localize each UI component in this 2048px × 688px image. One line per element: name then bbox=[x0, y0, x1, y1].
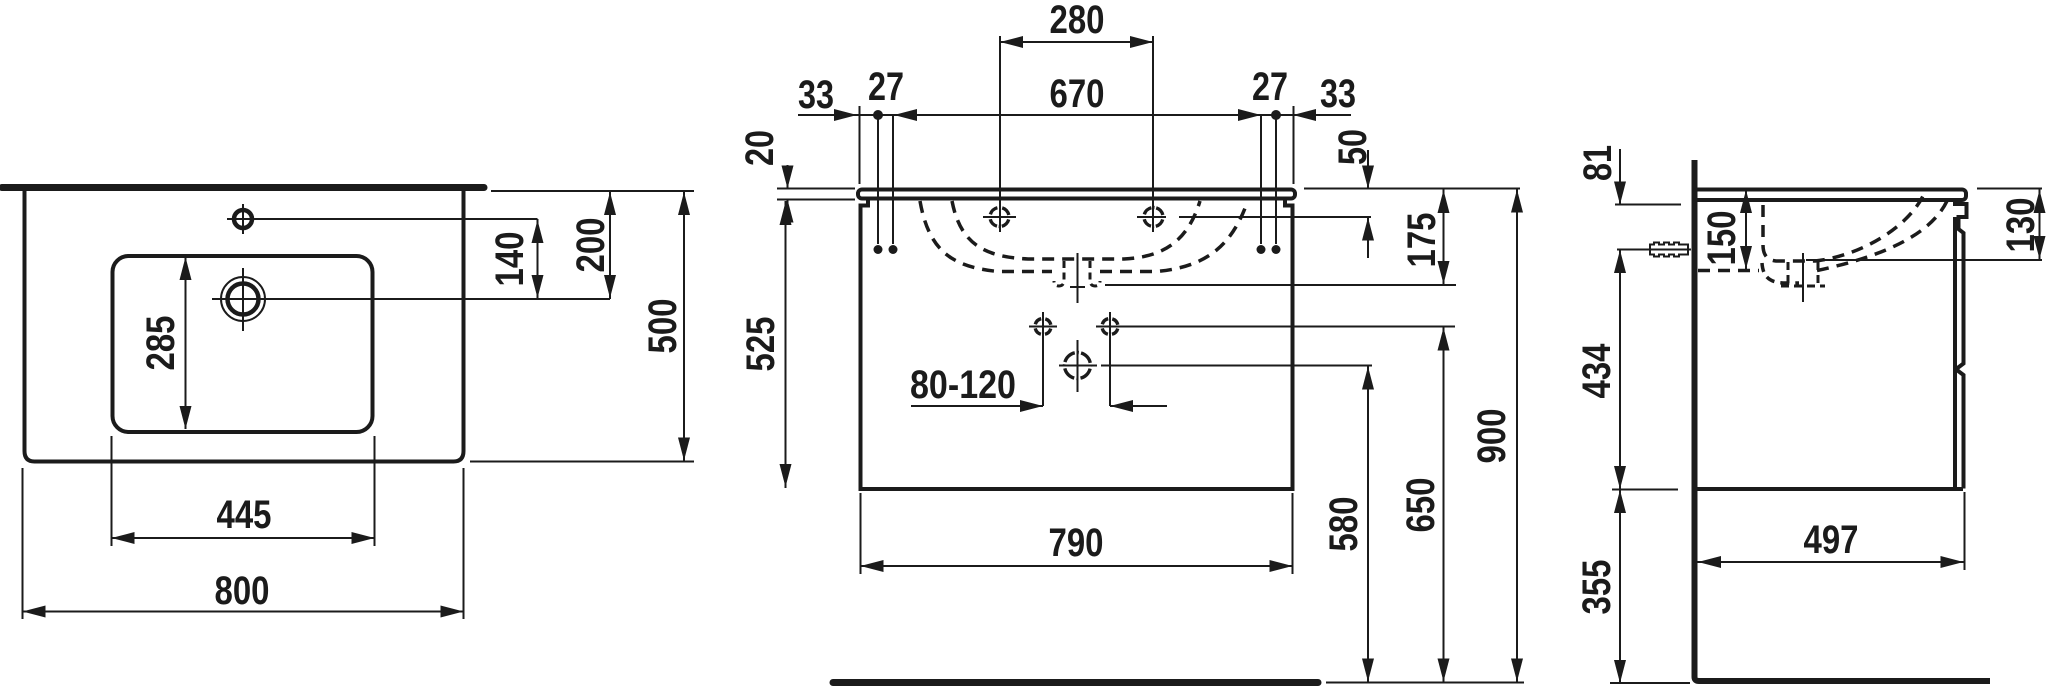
svg-text:280: 280 bbox=[1050, 0, 1105, 42]
svg-text:20: 20 bbox=[738, 130, 782, 166]
svg-text:80-120: 80-120 bbox=[910, 363, 1016, 407]
svg-text:175: 175 bbox=[1400, 213, 1444, 268]
svg-text:150: 150 bbox=[1700, 211, 1744, 266]
svg-text:790: 790 bbox=[1049, 521, 1104, 565]
svg-text:670: 670 bbox=[1050, 72, 1105, 116]
svg-text:580: 580 bbox=[1322, 497, 1366, 552]
svg-text:445: 445 bbox=[217, 493, 272, 537]
svg-text:33: 33 bbox=[798, 73, 834, 117]
svg-text:140: 140 bbox=[488, 232, 532, 287]
svg-text:27: 27 bbox=[1252, 65, 1288, 109]
svg-text:900: 900 bbox=[1470, 409, 1514, 464]
svg-text:200: 200 bbox=[569, 218, 613, 273]
svg-text:81: 81 bbox=[1576, 145, 1620, 181]
svg-text:497: 497 bbox=[1804, 518, 1859, 562]
svg-text:525: 525 bbox=[739, 317, 783, 372]
svg-text:27: 27 bbox=[868, 65, 904, 109]
svg-text:355: 355 bbox=[1575, 560, 1619, 615]
svg-text:650: 650 bbox=[1399, 478, 1443, 533]
svg-text:800: 800 bbox=[215, 569, 270, 613]
svg-text:130: 130 bbox=[1999, 198, 2043, 253]
svg-text:434: 434 bbox=[1575, 343, 1619, 399]
svg-text:500: 500 bbox=[641, 299, 685, 354]
svg-text:285: 285 bbox=[139, 316, 183, 371]
svg-text:50: 50 bbox=[1331, 129, 1375, 165]
svg-text:33: 33 bbox=[1320, 72, 1356, 116]
